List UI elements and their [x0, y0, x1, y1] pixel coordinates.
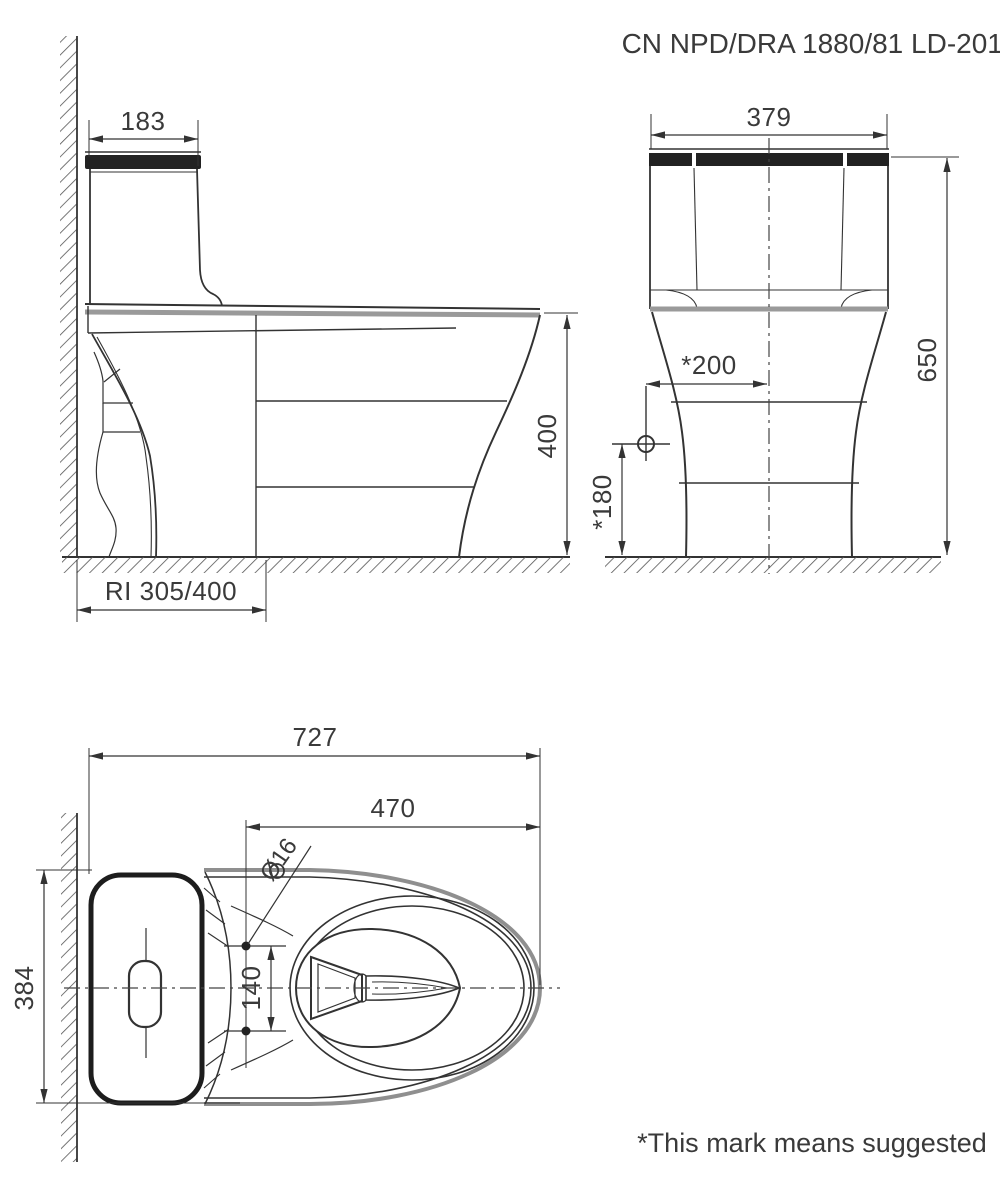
- side-view-drawing: 183 400 RI 305/400: [60, 36, 578, 622]
- svg-text:183: 183: [121, 106, 166, 136]
- tank-lid-side: [85, 155, 201, 169]
- dim-top-bolt-to-front: 470: [246, 793, 540, 827]
- footnote-label: *This mark means suggested: [637, 1128, 987, 1158]
- svg-text:727: 727: [293, 722, 338, 752]
- svg-text:650: 650: [912, 338, 942, 383]
- floor-hatch: [62, 557, 570, 573]
- svg-text:RI 305/400: RI 305/400: [105, 576, 237, 606]
- dim-side-bowl-height: 400: [532, 313, 578, 555]
- flush-button: [129, 961, 161, 1027]
- toilet-dimension-drawing: CN NPD/DRA 1880/81 LD-2018: [0, 0, 1000, 1178]
- svg-text:*180: *180: [587, 474, 617, 530]
- drawing-code-label: CN NPD/DRA 1880/81 LD-2018: [622, 28, 1000, 59]
- technical-drawing-canvas: CN NPD/DRA 1880/81 LD-2018: [0, 0, 1000, 1178]
- svg-text:379: 379: [747, 102, 792, 132]
- floor-hatch-front: [605, 557, 941, 573]
- svg-text:*200: *200: [681, 350, 737, 380]
- dim-front-total-height: 650: [891, 157, 959, 555]
- svg-text:400: 400: [532, 414, 562, 459]
- svg-text:384: 384: [9, 966, 39, 1011]
- front-view-drawing: 379 650 *200 *180: [587, 102, 959, 574]
- wall-hatch: [60, 36, 77, 557]
- svg-text:470: 470: [371, 793, 416, 823]
- top-view-drawing: 727 470 Ø16 384 140: [9, 722, 560, 1162]
- supply-point-mark: [612, 386, 670, 461]
- svg-text:140: 140: [236, 966, 266, 1011]
- dim-front-supply-vertical: *180: [587, 444, 622, 555]
